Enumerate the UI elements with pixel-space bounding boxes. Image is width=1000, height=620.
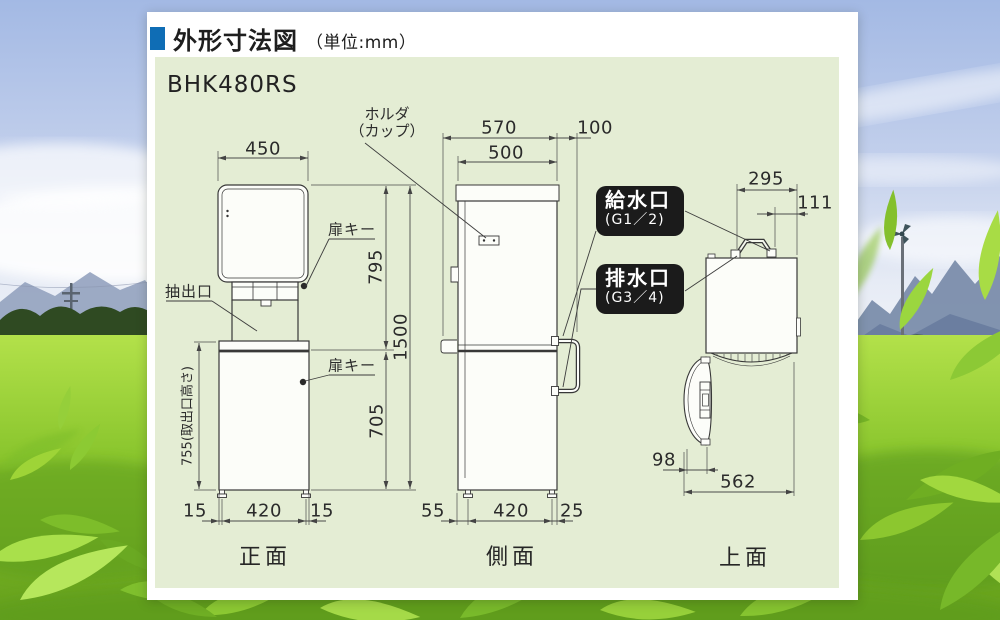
dim-side-depth-body: 500 <box>488 143 524 164</box>
dim-front-feet-span: 420 <box>246 501 282 522</box>
callout-water-supply-port: 給水口 (G1／2) <box>596 186 684 236</box>
unit-note: （単位:mm） <box>306 28 416 53</box>
dim-side-feet-span: 420 <box>493 501 529 522</box>
label-doorkey-top: 扉キー <box>328 219 376 240</box>
label-doorkey-bottom: 扉キー <box>328 355 376 376</box>
caption-front-view: 正面 <box>239 539 291 571</box>
dim-top-door-offset: 98 <box>652 450 676 471</box>
model-number: BHK480RS <box>167 72 298 98</box>
label-outlet: 抽出口 <box>165 281 213 302</box>
dim-front-total-height: 1500 <box>391 313 412 361</box>
page: { "header": { "title": "外形寸法図", "unit": … <box>0 0 1000 620</box>
label-cup-holder: ホルダ （カップ） <box>349 106 424 140</box>
page-title: 外形寸法図 <box>173 21 298 56</box>
dim-side-depth-total: 570 <box>481 118 517 139</box>
dim-front-upper-height: 795 <box>366 249 387 285</box>
dim-front-lower-height: 705 <box>367 403 388 439</box>
caption-top-view: 上面 <box>719 540 771 572</box>
title-bullet-icon <box>150 27 165 50</box>
caption-side-view: 側面 <box>486 539 538 571</box>
dim-front-foot-right: 15 <box>310 501 334 522</box>
dim-front-foot-left: 15 <box>183 501 207 522</box>
dim-top-pipe-span: 295 <box>748 169 784 190</box>
dim-side-foot-front: 55 <box>421 501 445 522</box>
dim-side-rear-pipe: 100 <box>577 118 613 139</box>
callout-drain-port: 排水口 (G3／4) <box>596 264 684 314</box>
dim-top-total-width: 562 <box>720 472 756 493</box>
diagram-header: 外形寸法図 （単位:mm） <box>150 23 416 53</box>
dim-top-inlet-offset: 111 <box>797 193 833 214</box>
dim-side-foot-rear: 25 <box>560 501 584 522</box>
dim-front-outlet-height: 755(取出口高さ) <box>177 366 196 466</box>
dim-front-width: 450 <box>245 139 281 160</box>
